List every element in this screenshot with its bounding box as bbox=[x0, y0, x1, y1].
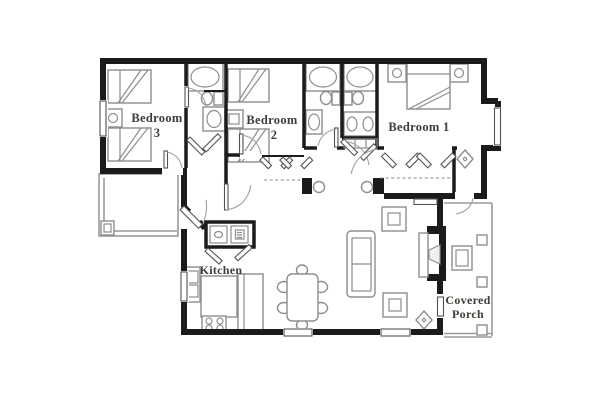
hall-bath-a-fixtures bbox=[306, 63, 340, 134]
bathroom-3-fixtures bbox=[188, 63, 226, 131]
ceiling-fixture-diamond bbox=[457, 150, 473, 168]
window bbox=[284, 329, 312, 336]
deck-post bbox=[101, 221, 114, 235]
toilet-tank bbox=[332, 92, 340, 105]
bedroom-2-label-line1: Bedroom bbox=[246, 113, 297, 127]
bay-window bbox=[495, 108, 501, 145]
covered-porch-label-line2: Porch bbox=[452, 307, 484, 321]
fireplace bbox=[419, 226, 446, 281]
end-table bbox=[382, 207, 406, 231]
left-deck bbox=[99, 174, 178, 236]
hall-column bbox=[362, 182, 373, 193]
bedroom-1-furniture bbox=[388, 62, 468, 109]
window bbox=[181, 272, 187, 301]
laundry-closet bbox=[205, 222, 254, 264]
hall-column bbox=[314, 182, 325, 193]
front-door bbox=[180, 206, 202, 228]
toilet bbox=[353, 92, 364, 105]
bedroom-2-label-line2: 2 bbox=[271, 128, 278, 142]
covered-porch: Covered Porch bbox=[444, 203, 492, 337]
window bbox=[100, 101, 106, 136]
porch-post bbox=[477, 235, 487, 245]
nightstand bbox=[450, 64, 468, 82]
kitchen-label: Kitchen bbox=[200, 263, 243, 277]
hall-bath-b-fixtures bbox=[344, 63, 377, 136]
window bbox=[381, 329, 410, 336]
wall-stub bbox=[302, 178, 312, 194]
toilet-tank bbox=[344, 92, 352, 105]
porch-post bbox=[477, 325, 487, 335]
toilet-tank bbox=[214, 92, 223, 105]
dining-furniture bbox=[278, 265, 328, 330]
bedroom-1-label: Bedroom 1 bbox=[388, 120, 449, 134]
bedroom-3-label-line1: Bedroom bbox=[131, 111, 182, 125]
end-table bbox=[383, 293, 407, 317]
floor-plan-image: Covered Porch bbox=[0, 0, 600, 400]
porch-post bbox=[477, 277, 487, 287]
hearth bbox=[419, 233, 428, 277]
porch-french-door bbox=[438, 297, 444, 316]
counter-refrigerator bbox=[238, 274, 263, 333]
floor-plan-drawing: Covered Porch bbox=[0, 0, 600, 400]
bedroom-3-label-line2: 3 bbox=[154, 126, 161, 140]
ceiling-fixture-diamond bbox=[416, 311, 432, 329]
double-sink-vanity bbox=[344, 112, 377, 136]
dining-table bbox=[287, 274, 318, 321]
kitchen-island bbox=[201, 276, 237, 317]
covered-porch-label-line1: Covered bbox=[445, 293, 490, 307]
nightstand bbox=[388, 64, 406, 82]
wall-stub bbox=[373, 178, 384, 194]
bed bbox=[407, 62, 450, 109]
toilet bbox=[321, 92, 332, 105]
